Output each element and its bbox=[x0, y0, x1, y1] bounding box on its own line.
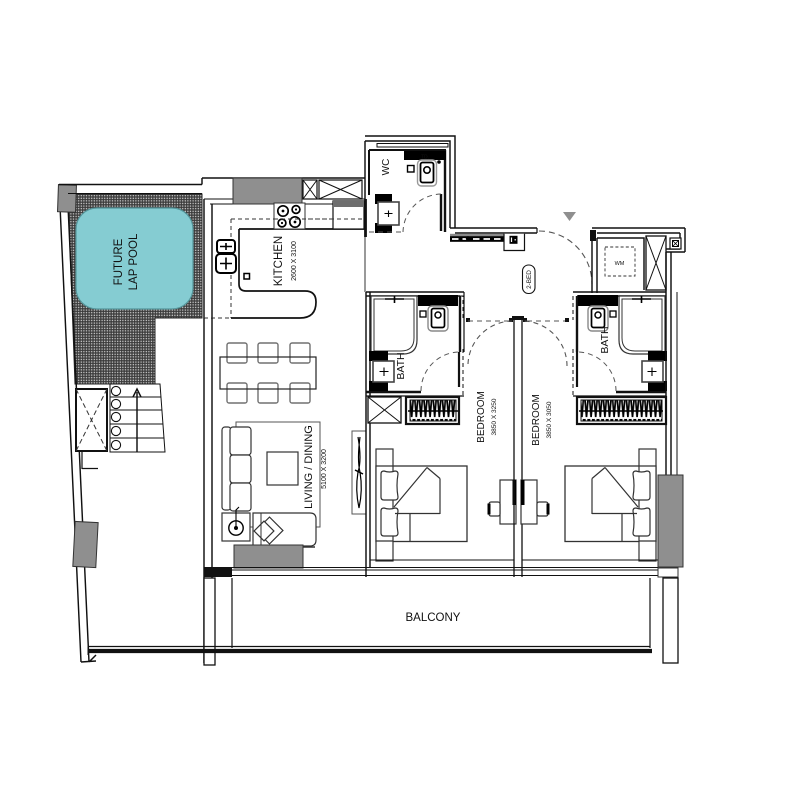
svg-text:FUTURE: FUTURE bbox=[113, 238, 125, 285]
svg-text:WC: WC bbox=[381, 159, 392, 176]
svg-text:LAP POOL: LAP POOL bbox=[128, 233, 140, 290]
svg-text:3850 X 3250: 3850 X 3250 bbox=[491, 398, 498, 435]
svg-text:BATH: BATH bbox=[599, 326, 611, 353]
svg-text:BATH: BATH bbox=[395, 352, 407, 379]
svg-text:LIVING / DINING: LIVING / DINING bbox=[303, 425, 315, 509]
svg-text:2600 X 3100: 2600 X 3100 bbox=[291, 241, 298, 281]
svg-text:5100 X 3200: 5100 X 3200 bbox=[321, 449, 328, 489]
svg-text:BEDROOM: BEDROOM bbox=[531, 394, 542, 446]
svg-text:KITCHEN: KITCHEN bbox=[273, 236, 285, 286]
svg-text:3850 X 3050: 3850 X 3050 bbox=[546, 401, 553, 438]
svg-text:WM: WM bbox=[615, 261, 625, 267]
svg-text:BALCONY: BALCONY bbox=[406, 612, 461, 624]
svg-text:2-BED: 2-BED bbox=[526, 270, 533, 289]
svg-text:BEDROOM: BEDROOM bbox=[476, 391, 487, 443]
